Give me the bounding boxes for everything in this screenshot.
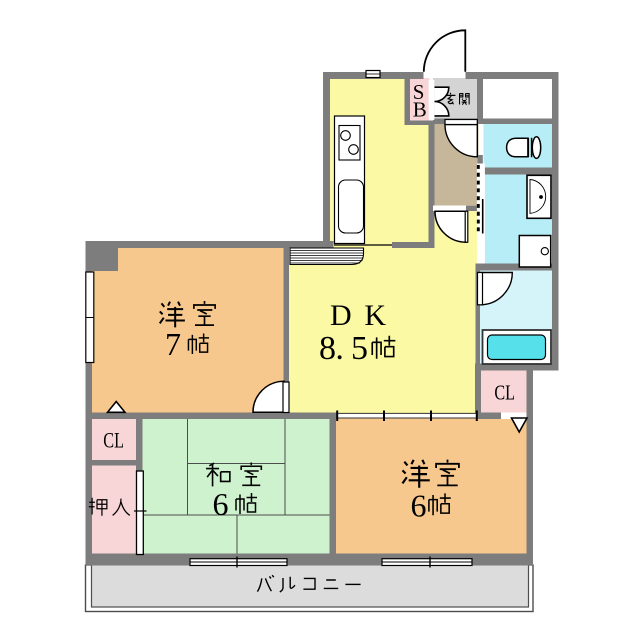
svg-text:6: 6 bbox=[213, 486, 229, 522]
svg-text:8. 5: 8. 5 bbox=[319, 330, 368, 367]
svg-text:6: 6 bbox=[411, 488, 427, 524]
svg-text:7: 7 bbox=[165, 326, 181, 362]
svg-text:B: B bbox=[413, 98, 427, 122]
svg-text:CL: CL bbox=[103, 428, 124, 453]
svg-text:CL: CL bbox=[494, 380, 515, 404]
